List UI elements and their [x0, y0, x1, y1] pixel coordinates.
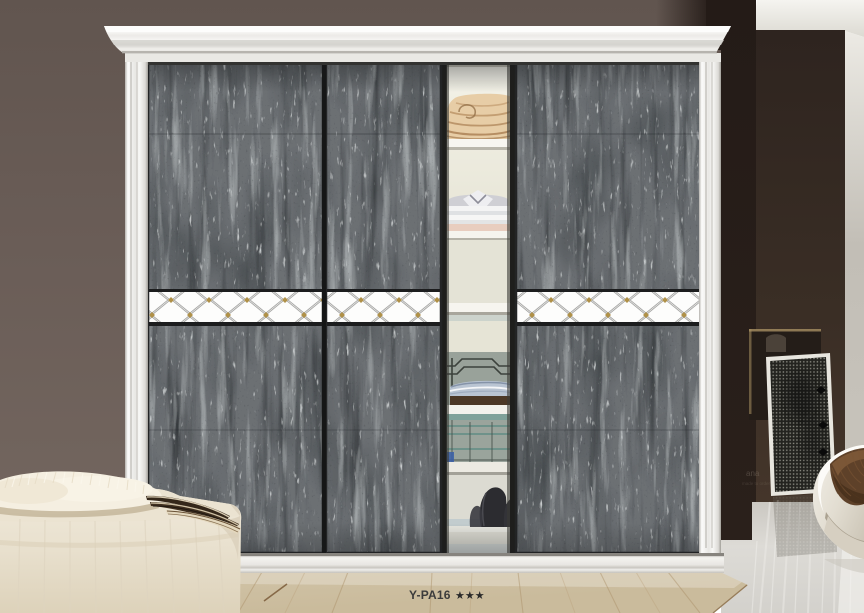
- svg-text:ana: ana: [746, 469, 760, 478]
- svg-text:★★★: ★★★: [455, 590, 485, 602]
- svg-text:Y-PA16: Y-PA16: [409, 588, 451, 602]
- svg-text:made to order: made to order: [742, 481, 771, 486]
